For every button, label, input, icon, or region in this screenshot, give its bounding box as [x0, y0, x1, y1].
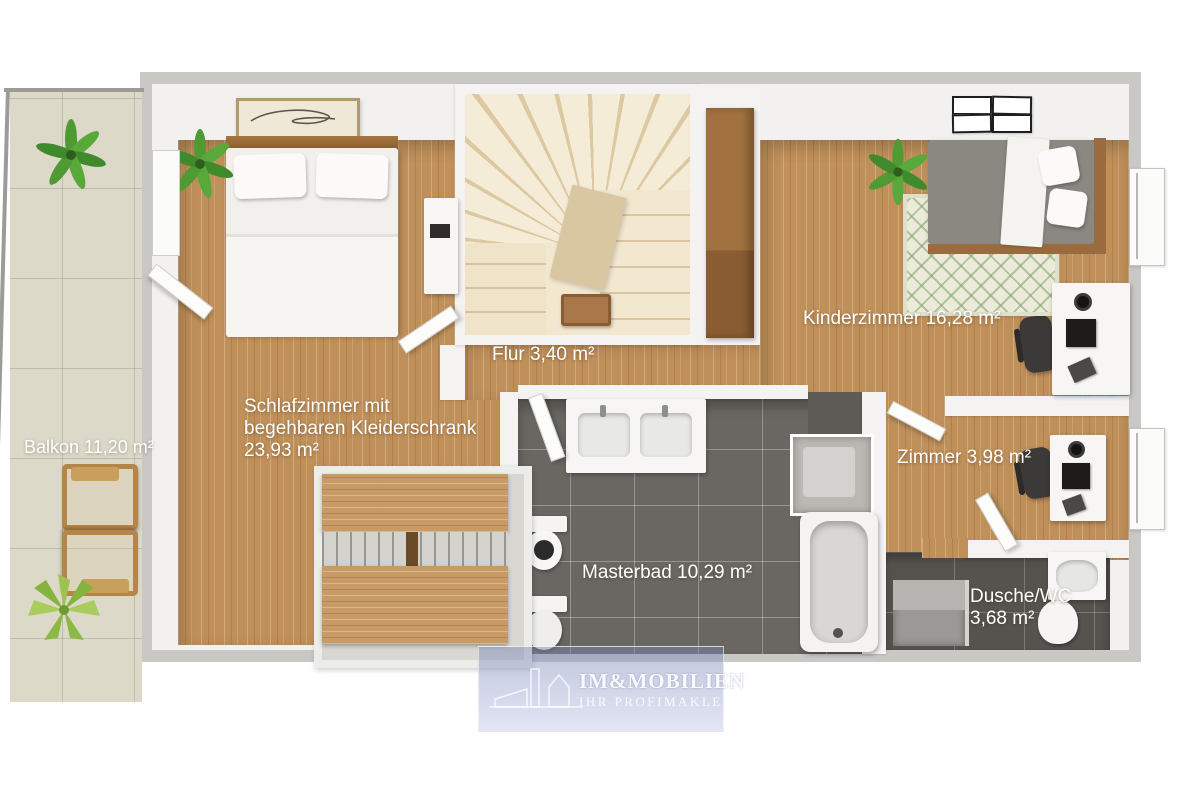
- sink: [578, 413, 630, 457]
- pillow: [233, 153, 306, 199]
- chair-backrest: [71, 467, 119, 481]
- shower-pan: [803, 447, 855, 497]
- pillow: [1046, 188, 1089, 229]
- monitor: [1062, 463, 1090, 489]
- hall-wall-stub: [440, 345, 465, 400]
- plant-icon: [32, 116, 110, 194]
- room-label-flur: Flur 3,40 m²: [492, 344, 594, 366]
- bed-frame: [1094, 138, 1106, 246]
- agency-brand: IM&MOBILIEN: [579, 669, 745, 694]
- agency-watermark: IM&MOBILIEN IHR PROFIMAKLER: [478, 646, 724, 732]
- wardrobe-unit: [322, 566, 508, 644]
- desk: [1052, 283, 1130, 395]
- double-sink-vanity: [566, 399, 706, 473]
- grass-plant-icon: [22, 568, 106, 652]
- sink: [640, 413, 692, 457]
- agency-name-block: IM&MOBILIEN IHR PROFIMAKLER: [579, 669, 745, 710]
- shower-bench: [893, 580, 965, 610]
- bath-top-wall: [518, 385, 808, 399]
- desk: [1050, 435, 1106, 521]
- door-threshold: [922, 538, 968, 558]
- label-line: Zimmer 3,98 m²: [897, 447, 1031, 469]
- desk-accessory: [1062, 494, 1086, 516]
- wardrobe-cabinet: [706, 108, 754, 338]
- label-line: begehbaren Kleiderschrank: [244, 418, 476, 440]
- shower: [893, 580, 965, 646]
- tub-basin: [810, 521, 868, 643]
- label-line: Flur 3,40 m²: [492, 344, 594, 366]
- window: [1129, 428, 1165, 530]
- label-line: Dusche/WC: [970, 586, 1071, 608]
- balcony-railing-top: [4, 88, 144, 92]
- closet-beam: [406, 532, 418, 566]
- corner-shower: [790, 434, 874, 516]
- desk-accessory: [1067, 357, 1096, 383]
- balcony-area: [10, 88, 142, 702]
- faucet: [662, 405, 668, 417]
- tub-drain: [833, 628, 843, 638]
- faucet: [600, 405, 606, 417]
- bed-blanket: [226, 234, 398, 337]
- laptop: [430, 224, 450, 238]
- label-line: Masterbad 10,29 m²: [582, 562, 752, 584]
- stairwell: [455, 84, 700, 345]
- picture-frame: [992, 114, 1032, 133]
- kids-room-divider-wall: [945, 396, 1129, 416]
- room-label-balkon: Balkon 11,20 m²: [24, 436, 154, 458]
- wooden-stool: [561, 294, 611, 326]
- picture-frame: [952, 96, 992, 115]
- walk-in-closet: [314, 466, 532, 668]
- balcony-chair: [62, 464, 138, 530]
- picture-frame: [952, 114, 992, 134]
- room-label-zimmer: Zimmer 3,98 m²: [897, 447, 1031, 469]
- agency-logo-icon: [487, 659, 585, 719]
- window: [1129, 168, 1165, 266]
- shower-glass: [965, 580, 969, 646]
- label-line: Kinderzimmer 16,28 m²: [803, 308, 1000, 330]
- label-line: 3,68 m²: [970, 608, 1071, 630]
- hall-wall: [700, 84, 760, 345]
- balcony-railing: [0, 88, 10, 702]
- pillow: [315, 153, 388, 199]
- label-line: Balkon 11,20 m²: [24, 436, 154, 458]
- balcony-window: [152, 150, 180, 256]
- pillow: [1037, 145, 1081, 187]
- mug: [1074, 293, 1092, 311]
- winding-staircase: [465, 94, 690, 335]
- wardrobe-unit: [322, 474, 508, 532]
- bathtub: [800, 512, 878, 652]
- room-label-masterbad: Masterbad 10,29 m²: [582, 562, 752, 584]
- double-bed: [226, 148, 398, 334]
- plant-icon: [862, 136, 934, 208]
- room-label-dusche-wc: Dusche/WC 3,68 m²: [970, 586, 1071, 630]
- toilet-seat: [534, 540, 554, 560]
- mug: [1068, 441, 1085, 458]
- room-label-kinderzimmer: Kinderzimmer 16,28 m²: [803, 308, 1000, 330]
- monitor: [1066, 319, 1096, 347]
- agency-tagline: IHR PROFIMAKLER: [579, 694, 745, 710]
- picture-frame: [992, 96, 1032, 116]
- side-desk: [424, 198, 458, 294]
- floor-plan: Balkon 11,20 m² Schlafzimmer mit begehba…: [0, 0, 1200, 800]
- label-line: Schlafzimmer mit: [244, 396, 476, 418]
- stair-flight-left: [465, 243, 546, 335]
- single-bed: [928, 140, 1094, 244]
- label-line: 23,93 m²: [244, 440, 476, 462]
- room-label-schlafzimmer: Schlafzimmer mit begehbaren Kleiderschra…: [244, 396, 476, 462]
